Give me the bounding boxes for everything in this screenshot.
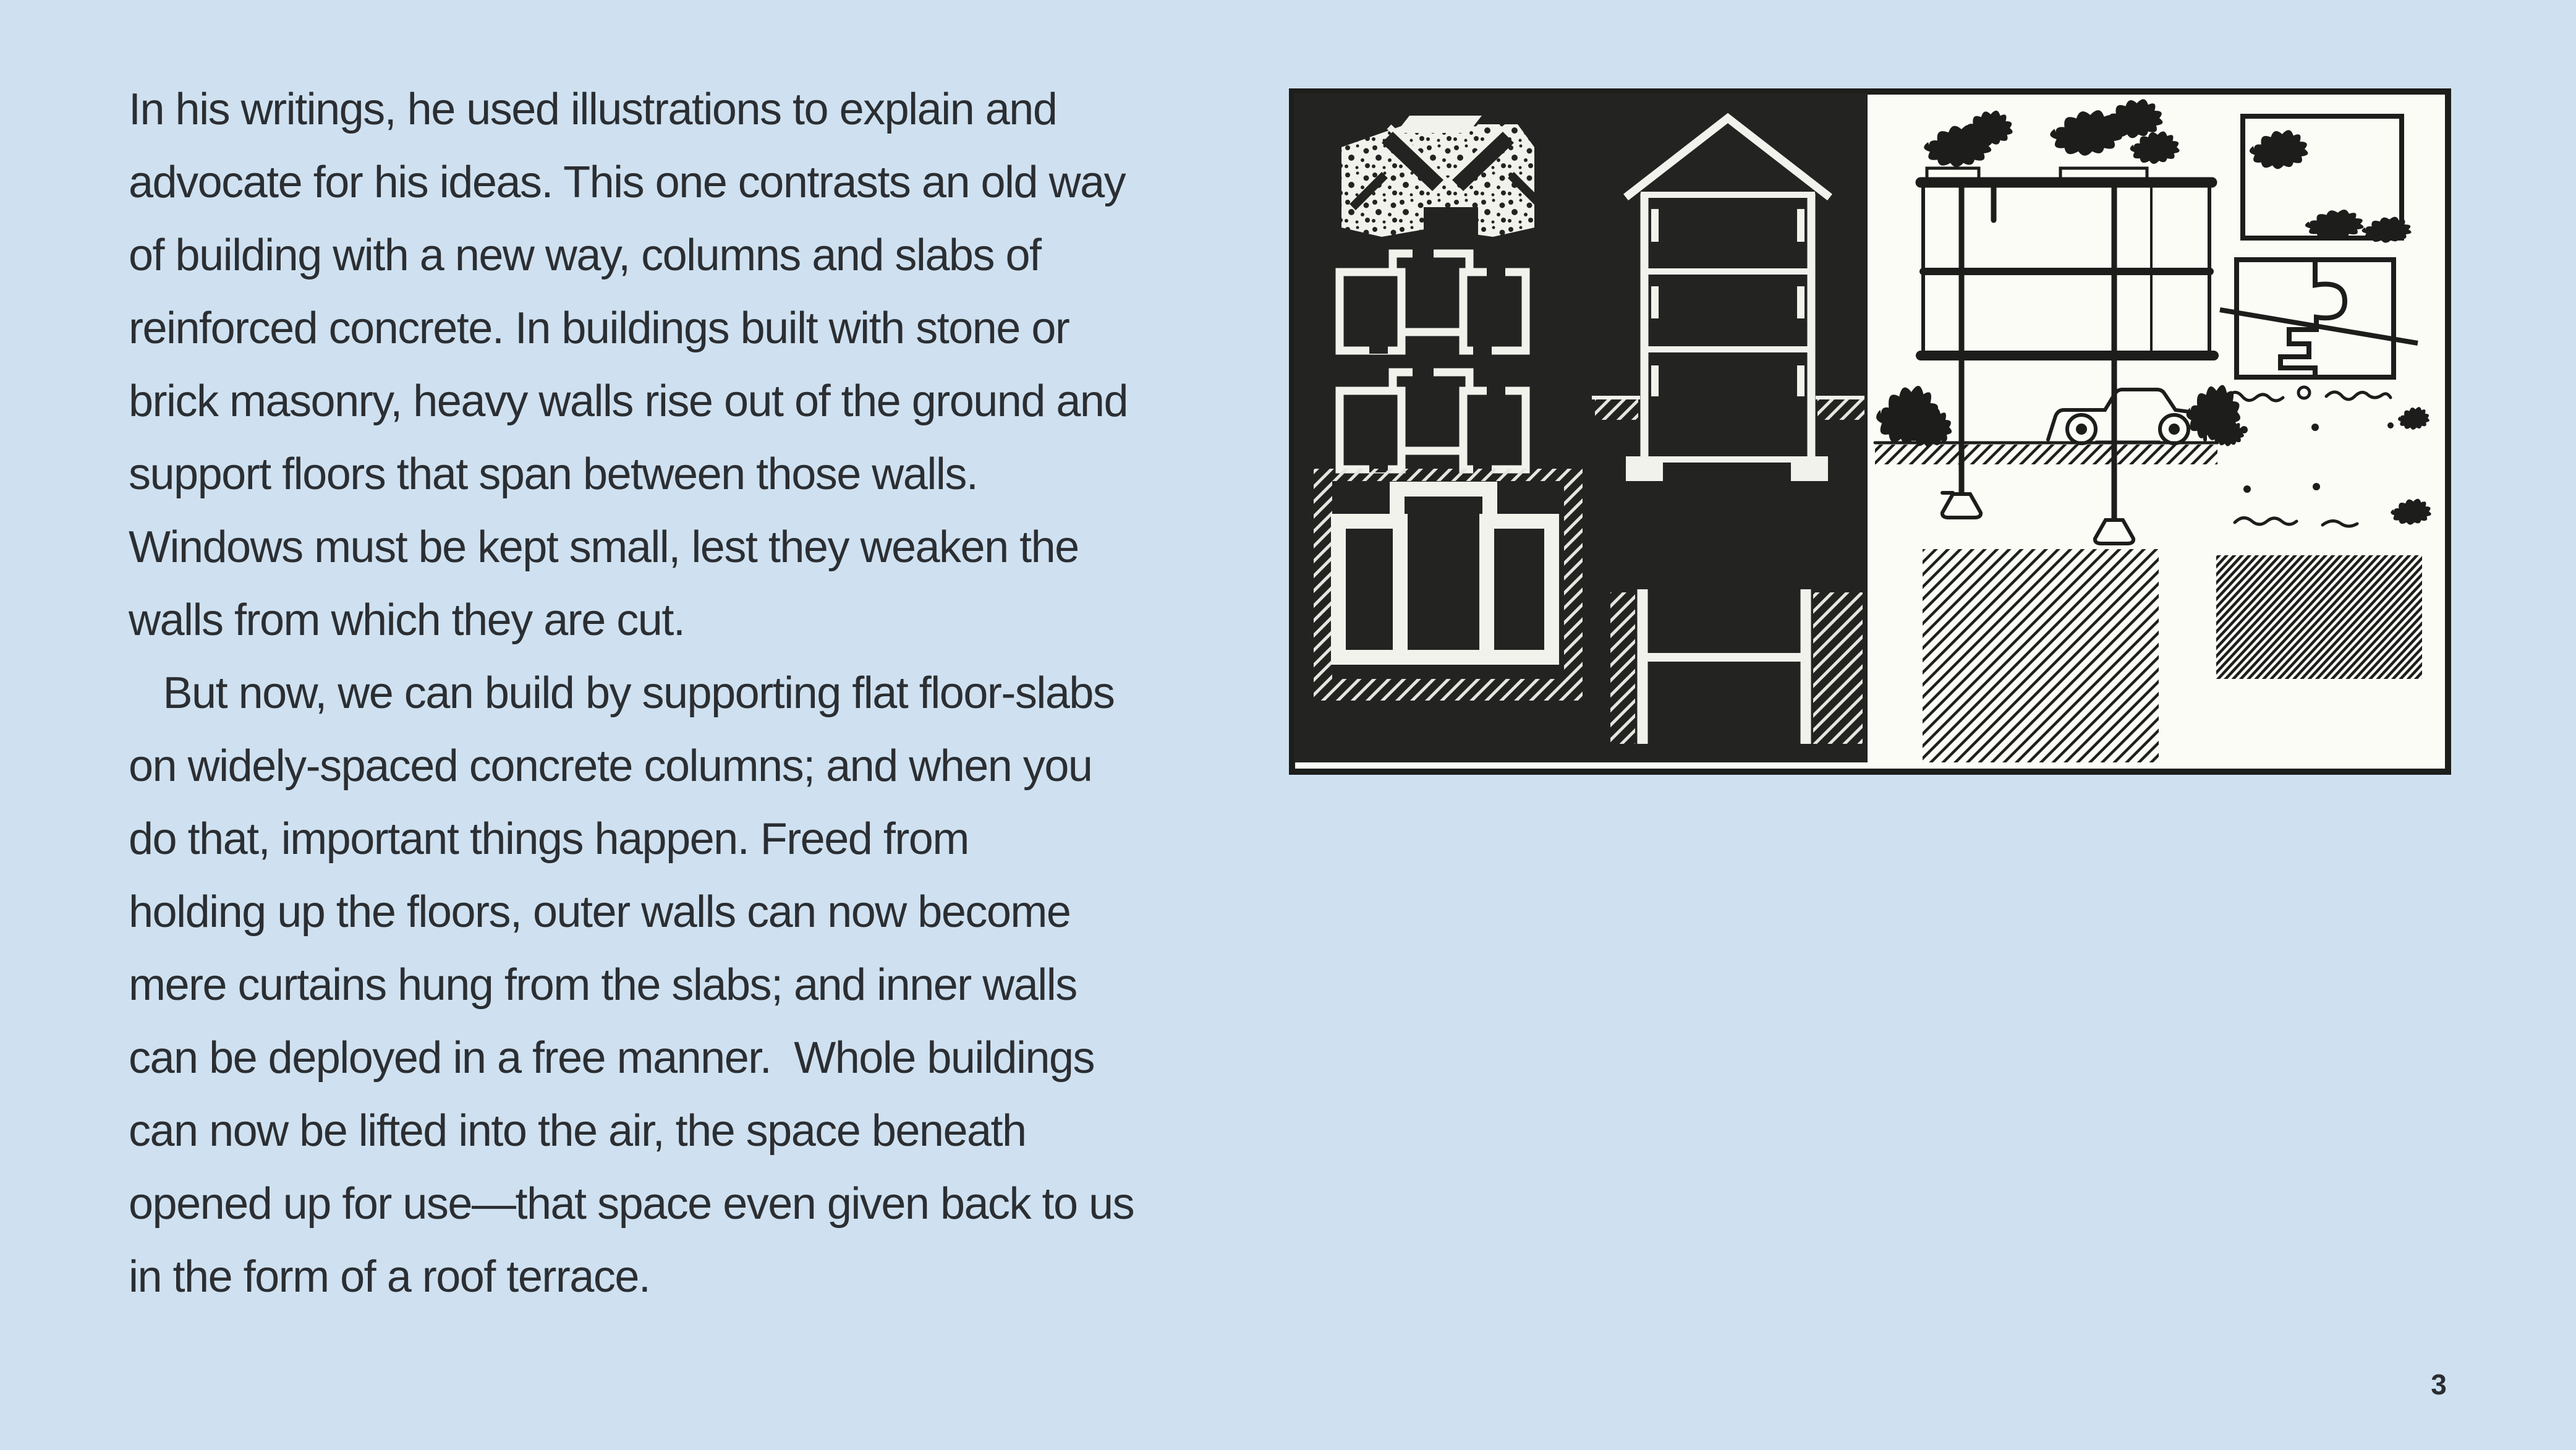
text-line: reinforced concrete. In buildings built … — [129, 292, 1134, 365]
text-line: opened up for use—that space even given … — [129, 1167, 1134, 1240]
masonry-foundation-plan — [1314, 469, 1583, 701]
text-line: brick masonry, heavy walls rise out of t… — [129, 365, 1134, 438]
site-hatch-small — [2216, 555, 2422, 679]
text-line: advocate for his ideas. This one contras… — [129, 146, 1134, 219]
construction-comparison-figure — [1289, 88, 2451, 775]
text-line: support floors that span between those w… — [129, 438, 1134, 511]
book-page: In his writings, he used illustrations t… — [0, 0, 2576, 1450]
body-text: In his writings, he used illustrations t… — [129, 73, 1134, 1313]
site-hatch-large — [1923, 549, 2159, 762]
text-line: walls from which they are cut. — [129, 584, 1134, 657]
text-line: can be deployed in a free manner. Whole … — [129, 1021, 1134, 1094]
masonry-vs-concrete-illustration — [1289, 88, 2451, 775]
text-line: In his writings, he used illustrations t… — [129, 73, 1134, 146]
text-line: of building with a new way, columns and … — [129, 219, 1134, 292]
page-number: 3 — [2411, 1368, 2467, 1401]
text-line: on widely-spaced concrete columns; and w… — [129, 730, 1134, 803]
text-line: can now be lifted into the air, the spac… — [129, 1094, 1134, 1167]
text-line: holding up the floors, outer walls can n… — [129, 876, 1134, 949]
text-line: Windows must be kept small, lest they we… — [129, 511, 1134, 584]
text-line: mere curtains hung from the slabs; and i… — [129, 949, 1134, 1021]
text-line: in the form of a roof terrace. — [129, 1240, 1134, 1313]
text-line: do that, important things happen. Freed … — [129, 803, 1134, 876]
text-line: But now, we can build by supporting flat… — [129, 657, 1134, 730]
